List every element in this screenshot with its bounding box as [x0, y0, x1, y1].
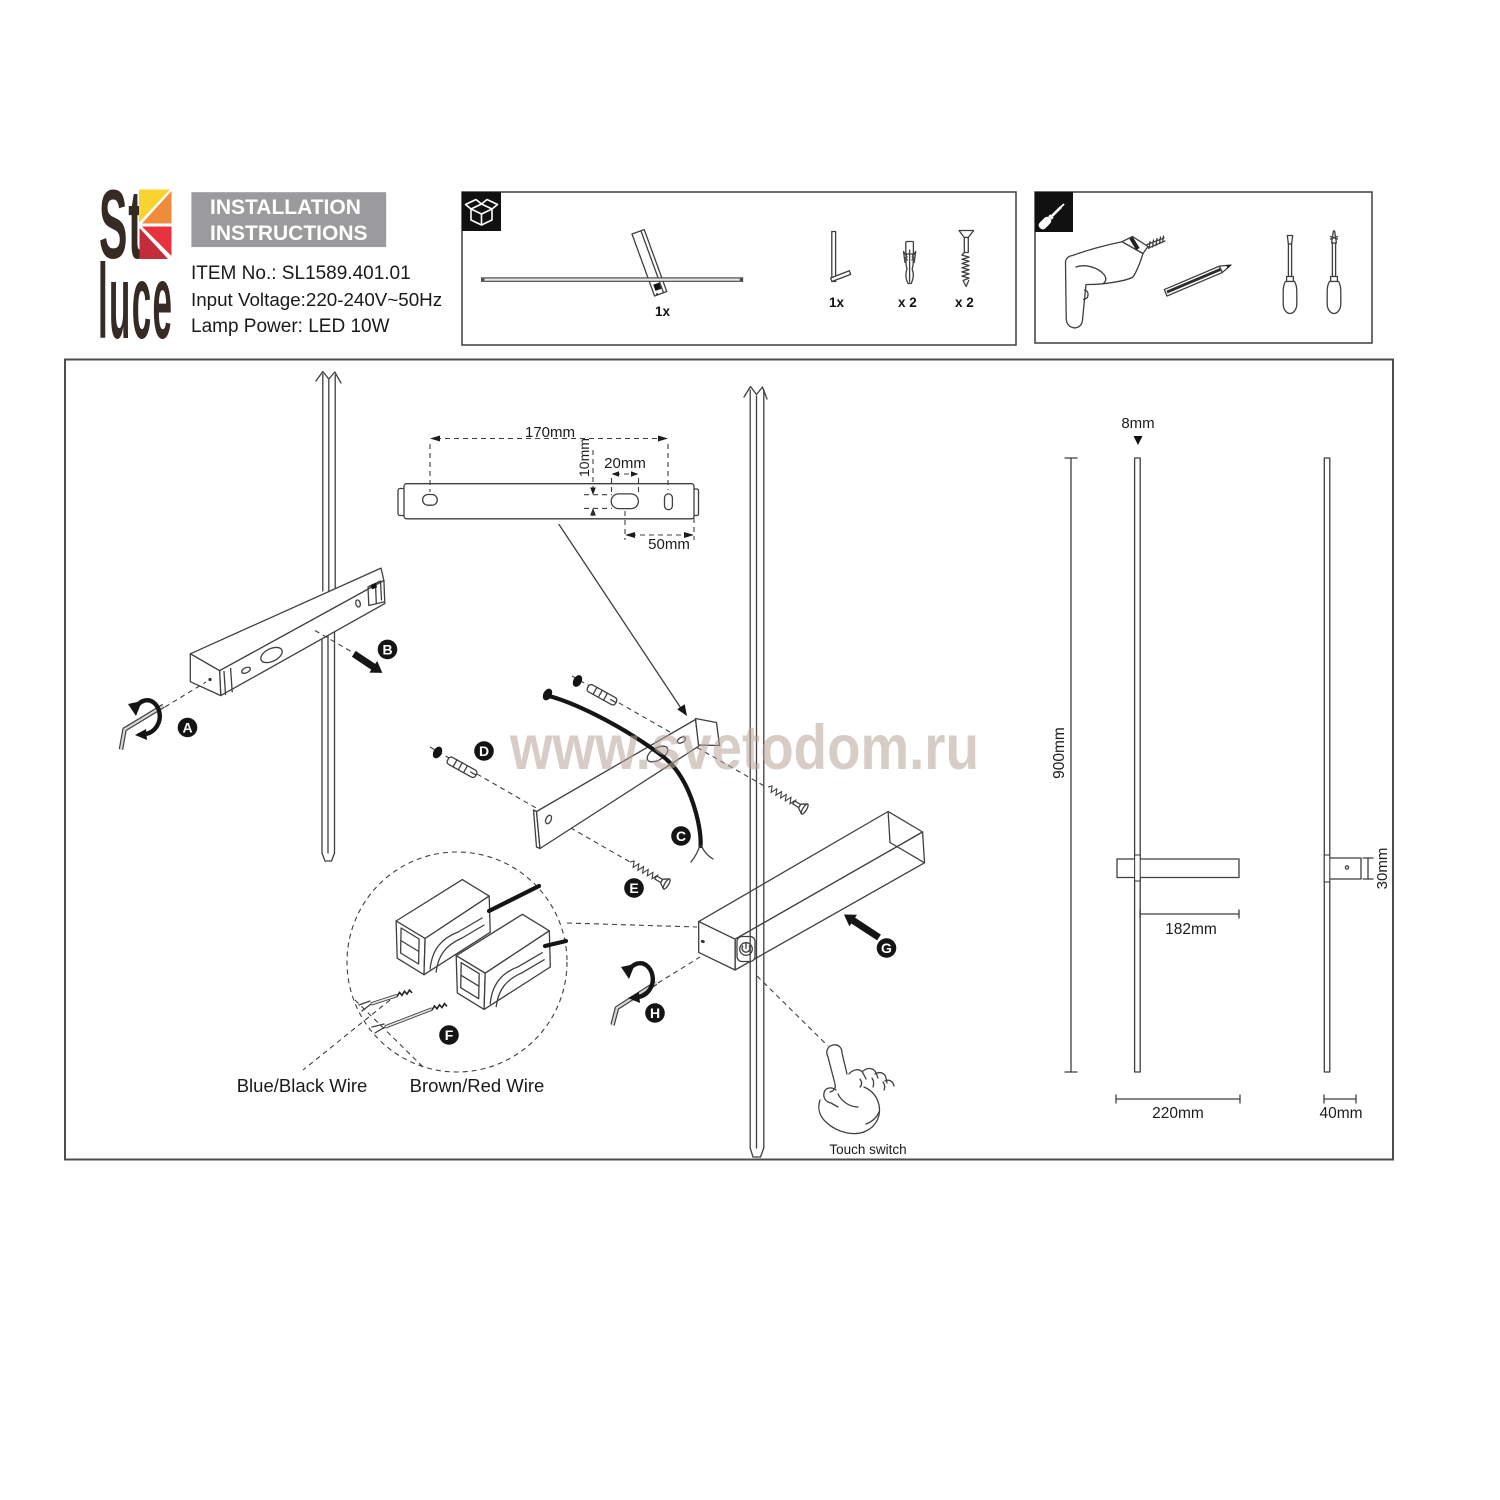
- svg-text:Brown/Red Wire: Brown/Red Wire: [410, 1075, 545, 1096]
- svg-text:Input Voltage:220-240V~50Hz: Input Voltage:220-240V~50Hz: [191, 289, 442, 310]
- svg-text:20mm: 20mm: [604, 455, 646, 472]
- svg-text:Touch switch: Touch switch: [829, 1142, 906, 1157]
- svg-text:D: D: [479, 743, 489, 759]
- svg-text:170mm: 170mm: [525, 424, 575, 441]
- svg-text:A: A: [182, 720, 192, 736]
- svg-text:C: C: [676, 828, 686, 844]
- svg-text:Lamp Power: LED 10W: Lamp Power: LED 10W: [191, 316, 390, 337]
- svg-text:x 2: x 2: [955, 295, 974, 310]
- svg-text:G: G: [881, 940, 892, 956]
- svg-text:1x: 1x: [655, 304, 671, 319]
- svg-text:10mm: 10mm: [576, 438, 592, 477]
- svg-text:50mm: 50mm: [648, 536, 690, 553]
- svg-text:x 2: x 2: [898, 295, 917, 310]
- svg-text:ITEM No.: SL1589.401.01: ITEM No.: SL1589.401.01: [191, 263, 411, 284]
- svg-text:1x: 1x: [829, 295, 845, 310]
- svg-text:220mm: 220mm: [1152, 1105, 1204, 1122]
- svg-text:E: E: [629, 880, 638, 896]
- svg-text:INSTRUCTIONS: INSTRUCTIONS: [210, 222, 368, 245]
- svg-text:8mm: 8mm: [1121, 415, 1154, 432]
- svg-text:Blue/Black Wire: Blue/Black Wire: [237, 1075, 368, 1096]
- svg-text:H: H: [650, 1005, 660, 1021]
- svg-text:182mm: 182mm: [1165, 921, 1217, 938]
- svg-text:900mm: 900mm: [1051, 727, 1068, 779]
- svg-text:40mm: 40mm: [1319, 1105, 1362, 1122]
- svg-text:INSTALLATION: INSTALLATION: [210, 196, 361, 219]
- svg-text:B: B: [382, 641, 392, 657]
- svg-text:www.svetodom.ru: www.svetodom.ru: [509, 713, 979, 783]
- svg-text:30mm: 30mm: [1374, 848, 1391, 890]
- svg-text:luce: luce: [98, 243, 173, 361]
- svg-text:F: F: [445, 1027, 454, 1043]
